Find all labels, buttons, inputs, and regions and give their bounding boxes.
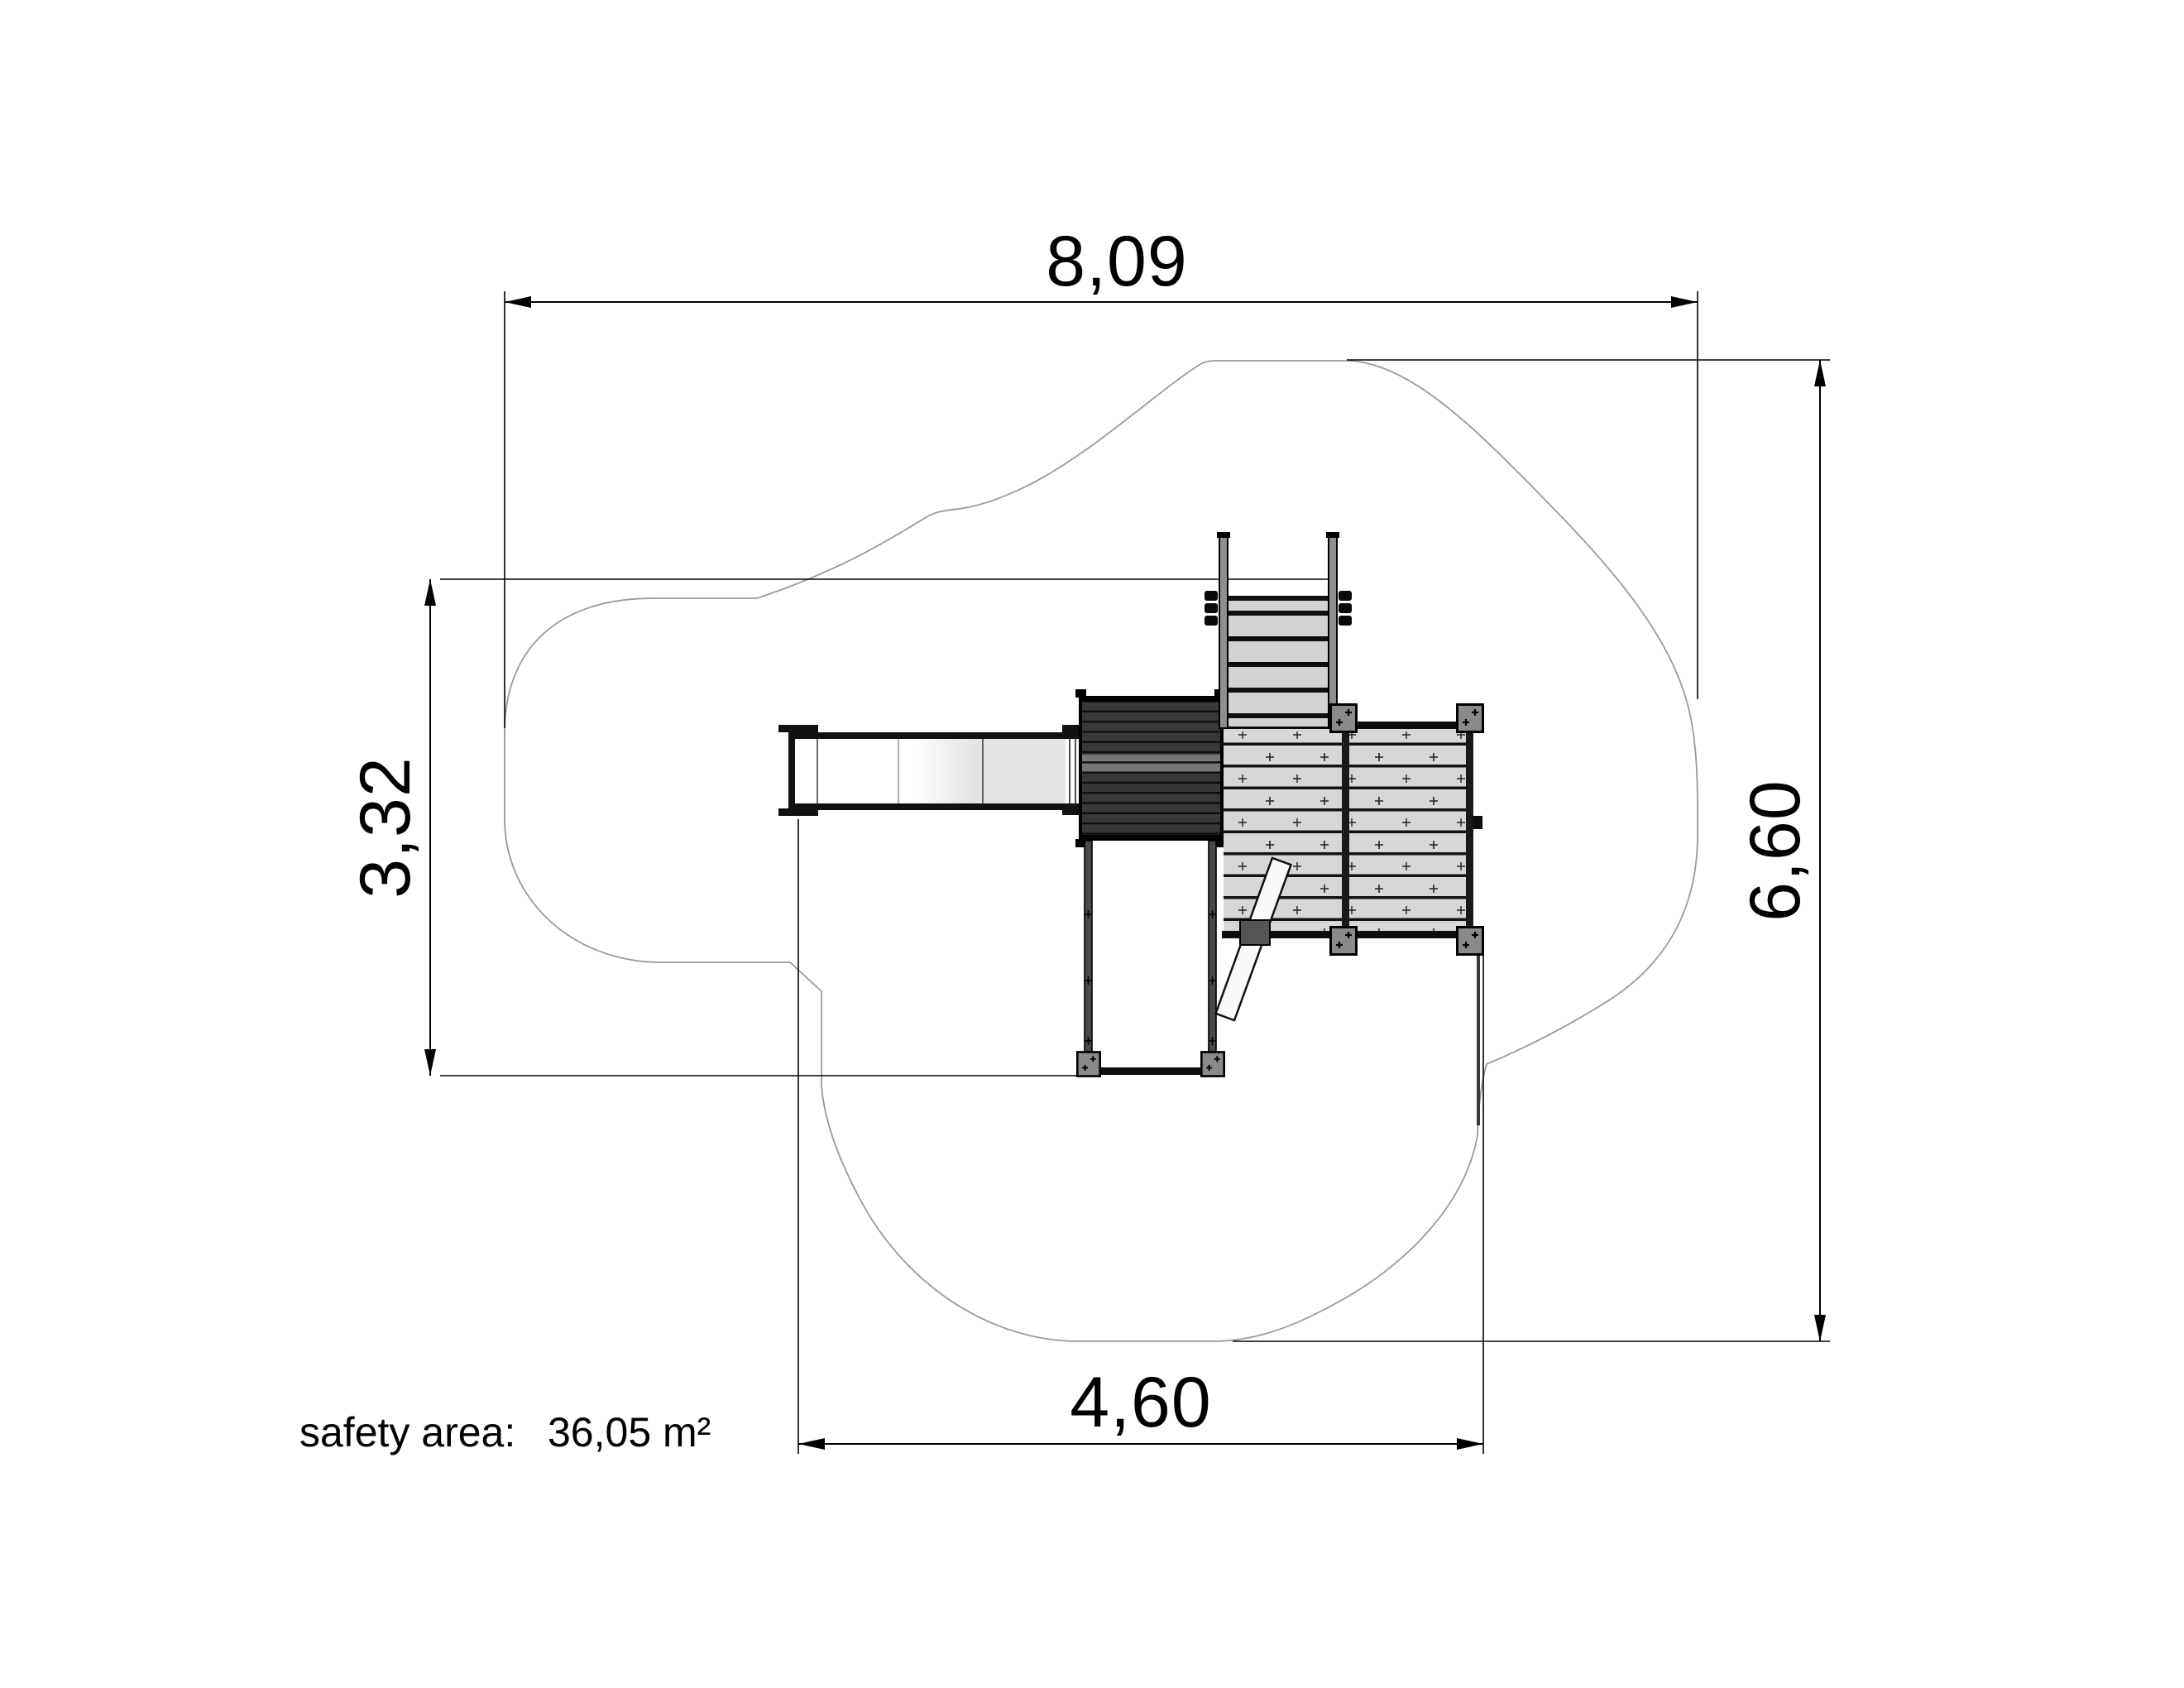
stair-rail-left (1219, 536, 1228, 728)
dimension-label-top: 8,09 (1046, 222, 1187, 301)
lower-ladder-rail-left (1085, 841, 1092, 1066)
stair-rail-cap-left (1217, 532, 1230, 538)
slide-end-tab-bottom (778, 808, 818, 816)
corner-post-top-middle (1331, 705, 1357, 732)
slide-rail-top (793, 732, 1082, 739)
brace-clamp (1240, 920, 1270, 945)
stair-rail-right (1329, 536, 1337, 728)
plan-drawing-canvas: 8,09 6,60 3,32 4,60 safety area: 36,05 m… (0, 0, 2184, 1688)
dimension-label-left: 3,32 (346, 756, 425, 898)
dimension-label-bottom: 4,60 (1070, 1363, 1211, 1442)
lower-ladder-post-left (1077, 1052, 1099, 1076)
dimension-label-right: 6,60 (1736, 779, 1815, 921)
lower-ladder-rail-right (1209, 841, 1216, 1066)
corner-post-bottom-right (1458, 928, 1483, 955)
safety-area-note: safety area: 36,05 m² (299, 1409, 711, 1455)
deck-rail-middle (1342, 728, 1349, 931)
slide-bed (795, 739, 1066, 803)
stair-hinges-left (1205, 591, 1218, 626)
lower-ladder-bottom-bar (1099, 1067, 1202, 1075)
deck-rail-right (1466, 728, 1473, 931)
slide-end-tab-top (778, 725, 818, 732)
dark-platform-edge-left (1079, 696, 1082, 841)
dark-platform-edge-bottom (1080, 835, 1222, 841)
dark-platform-edge-top (1080, 696, 1222, 702)
stair-rungs (1228, 597, 1329, 727)
safety-area-value: 36,05 m² (548, 1409, 711, 1455)
corner-post-top-right (1458, 705, 1483, 732)
stair-hinges-right (1339, 591, 1352, 626)
slide-end-bar (788, 727, 795, 816)
safety-area-label: safety area: (299, 1409, 515, 1455)
dark-platform (1075, 689, 1225, 847)
stair-rail-cap-right (1326, 532, 1339, 538)
deck-right-bracket (1473, 816, 1482, 829)
dark-platform-cap-1 (1075, 689, 1086, 698)
corner-post-bottom-middle (1331, 928, 1357, 955)
slide-rail-bottom (793, 803, 1082, 810)
stair-top-rung (1228, 596, 1329, 601)
dark-platform-slats (1080, 696, 1222, 841)
lower-ladder-post-right (1201, 1052, 1224, 1076)
slide (778, 725, 1084, 816)
